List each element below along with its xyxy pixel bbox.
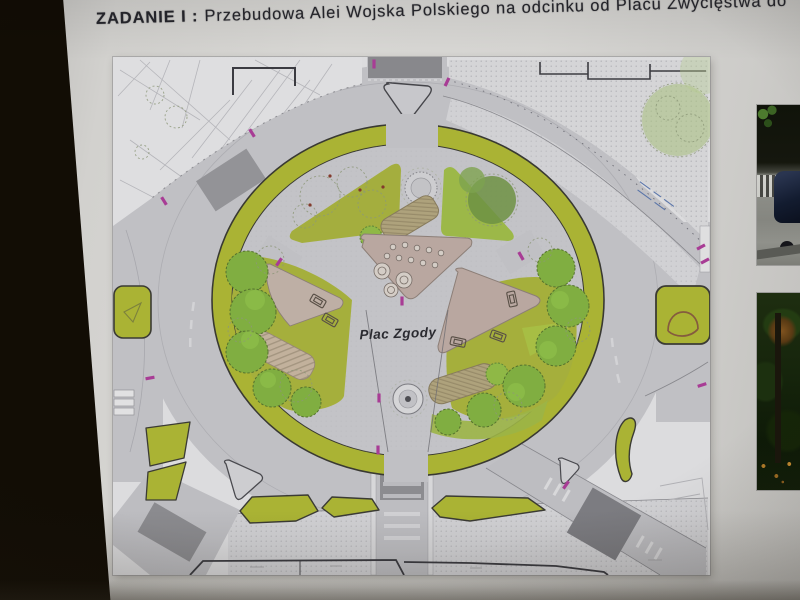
green-island-west xyxy=(114,286,151,338)
pavement-shadow xyxy=(757,243,800,260)
slide-title-task-number: ZADANIE I : xyxy=(96,7,199,28)
photographed-presentation-slide: ZADANIE I :Przebudowa Alei Wojska Polski… xyxy=(0,0,800,600)
steps-west-edge xyxy=(114,390,134,415)
stroller-silhouette xyxy=(774,171,800,223)
rust-colored-canopy xyxy=(767,315,797,347)
bottom-shadow xyxy=(0,580,800,600)
fallen-leaves xyxy=(757,450,800,490)
plaza-name-label: Plac Zgody xyxy=(359,325,437,343)
foliage-patch xyxy=(757,105,777,131)
tree-trunk xyxy=(775,313,781,463)
crosswalk-north xyxy=(368,57,442,78)
site-plan-drawing: Plac Zgody xyxy=(113,57,710,575)
street-scene-photo xyxy=(757,105,800,265)
park-greenery-photo xyxy=(757,293,800,490)
